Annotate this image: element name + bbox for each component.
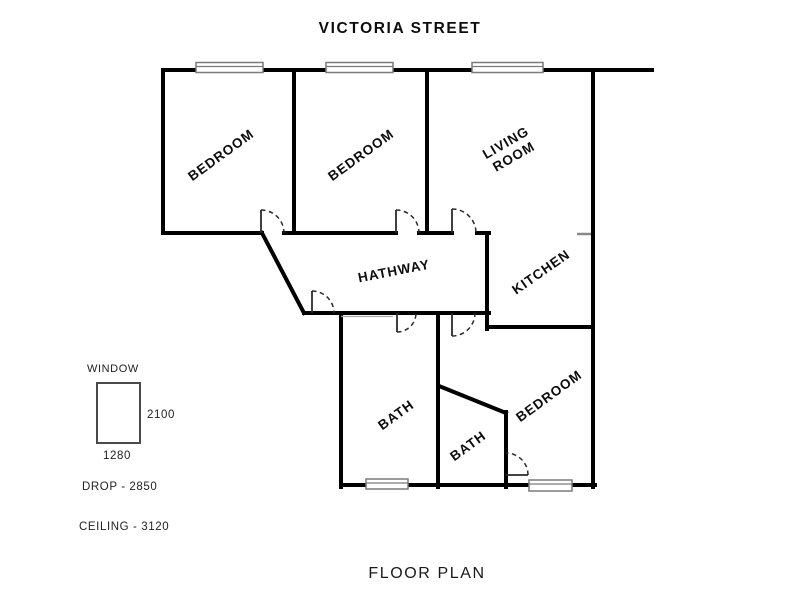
window-bedroom1 [196, 63, 263, 73]
door-swing-arc [506, 453, 528, 475]
legend-window-symbol [97, 383, 140, 443]
door-swing-arc [261, 210, 284, 233]
floor-plan-page: VICTORIA STREET BEDROOM BEDROOM LIVING R… [0, 0, 792, 612]
door-swing-arc [452, 313, 475, 336]
door-entrance [312, 291, 334, 313]
legend-ceiling: CEILING - 3120 [79, 521, 169, 533]
door-bedroom3 [452, 313, 475, 336]
legend-drop: DROP - 2850 [82, 481, 157, 493]
door-swing-arc [452, 209, 476, 233]
door-bedroom2 [396, 210, 419, 233]
legend-window-width: 1280 [103, 450, 131, 462]
wall-hallway-diagonal [262, 233, 304, 313]
page-title: VICTORIA STREET [319, 20, 482, 38]
walls [163, 70, 652, 487]
window-bath1 [366, 479, 408, 489]
wall-bath2-diagonal [439, 386, 506, 413]
door-bath1 [397, 313, 416, 332]
legend-window-label: WINDOW [87, 363, 139, 375]
window-living-room [472, 63, 543, 73]
window-bedroom2 [326, 63, 393, 73]
door-living-room [452, 209, 476, 233]
door-swing-arc [396, 210, 419, 233]
window-bedroom3 [529, 480, 572, 491]
door-bath2 [506, 453, 528, 475]
caption: FLOOR PLAN [368, 565, 485, 583]
door-swing-arc [397, 313, 416, 332]
door-bedroom1 [261, 210, 284, 233]
door-swing-arc [312, 291, 334, 313]
legend-window-height: 2100 [147, 409, 175, 421]
